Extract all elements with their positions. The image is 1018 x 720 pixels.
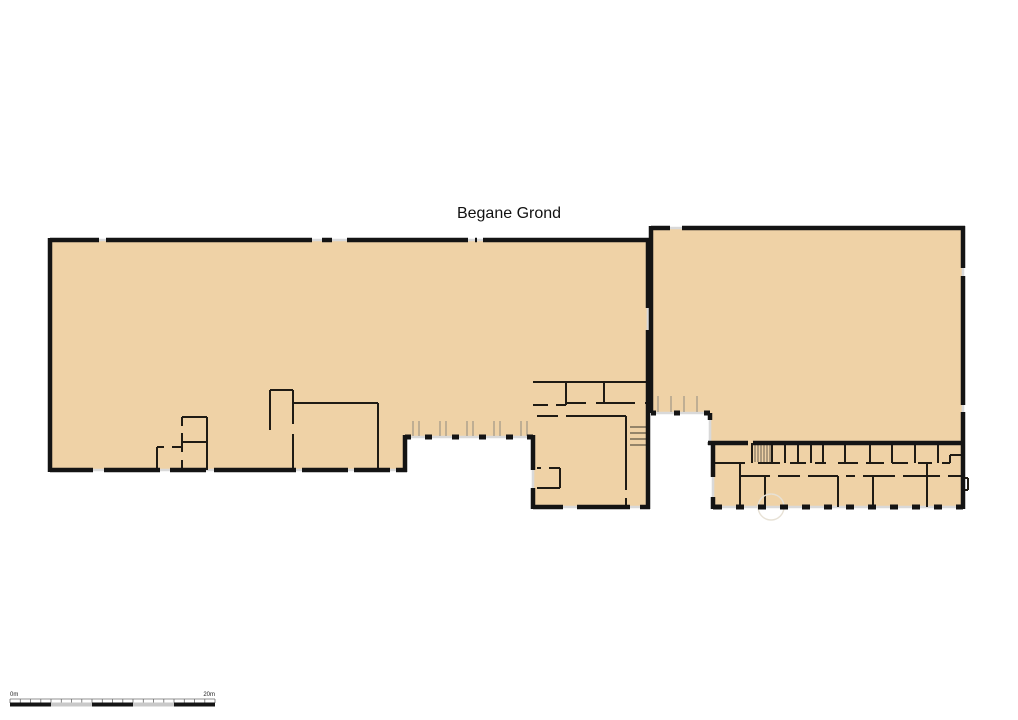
right-building-floor <box>651 228 963 507</box>
scale-bar: 0m 20m <box>10 692 215 705</box>
plan-title: Begane Grond <box>457 205 561 222</box>
left-building-floor <box>50 240 648 507</box>
scale-label-end: 20m <box>203 692 215 698</box>
scale-label-start: 0m <box>10 692 18 698</box>
floorplan-svg: Begane Grond 0m 20m <box>0 0 1018 720</box>
scale-ticks <box>10 699 215 703</box>
